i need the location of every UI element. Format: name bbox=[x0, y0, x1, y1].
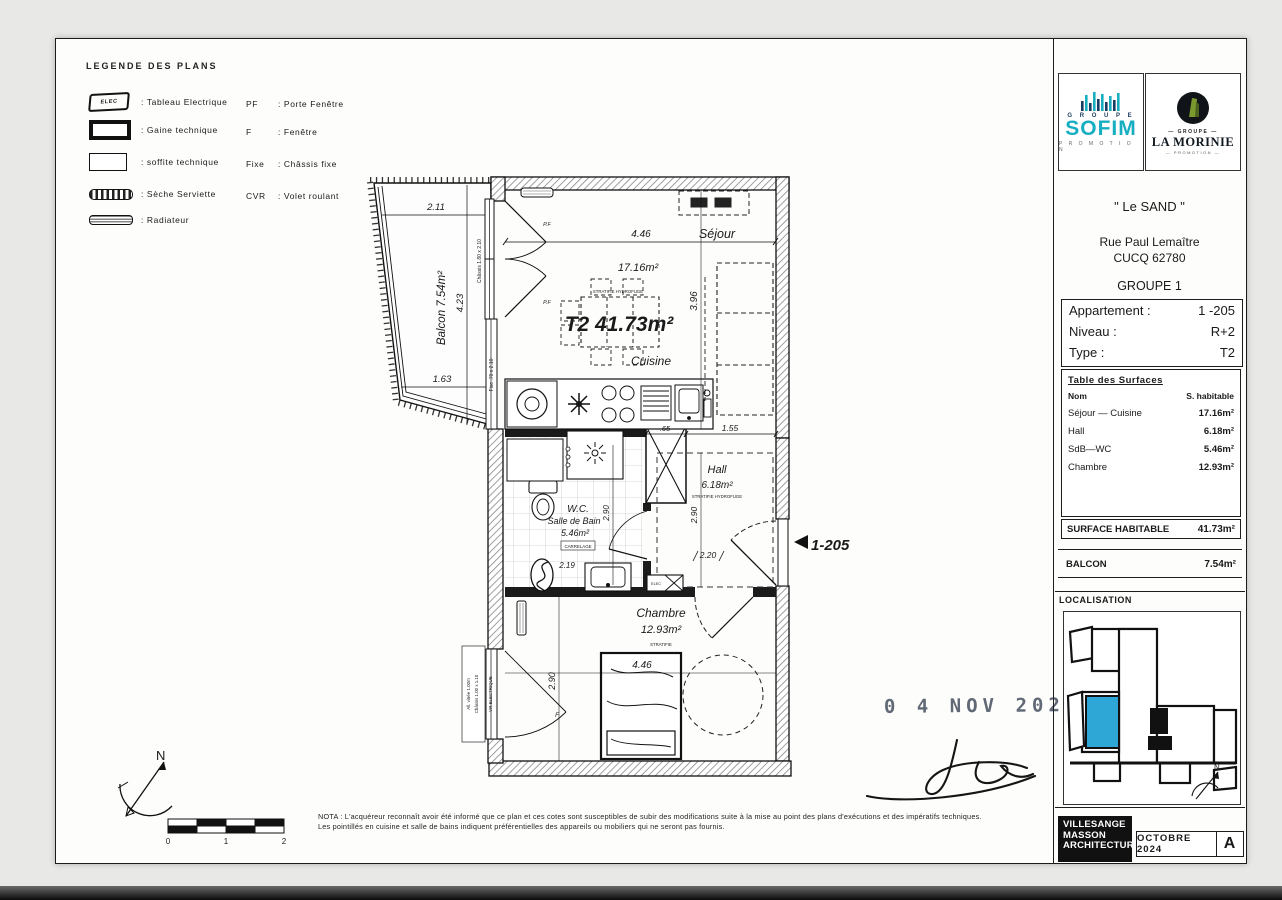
sejour-area: 17.16m² bbox=[618, 262, 659, 274]
wc-label: W.C. bbox=[567, 504, 589, 515]
surface-row-sejour: Séjour — Cuisine 17.16m² bbox=[1068, 408, 1234, 419]
legend-label: : Radiateur bbox=[141, 215, 189, 225]
surfaces-title: Table des Surfaces bbox=[1068, 375, 1234, 386]
scale-0: 0 bbox=[166, 837, 171, 846]
fixe-note: Fixe .70 x 2.10 bbox=[489, 358, 495, 391]
radiator-sejour bbox=[521, 188, 553, 197]
project-title: " Le SAND " bbox=[1055, 199, 1244, 214]
chambre: Chambre 12.93m² STRATIFIE 4.46 2.90 bbox=[505, 597, 776, 761]
dim-sdb-w: 2.19 bbox=[558, 561, 575, 570]
legend-abbrev-f: F : Fenêtre bbox=[246, 122, 317, 142]
morinie-building-icon bbox=[1175, 90, 1211, 126]
surface-habitable-box: SURFACE HABITABLE 41.73m² bbox=[1061, 519, 1241, 539]
hall-label: Hall bbox=[708, 464, 728, 476]
legend-title: LEGENDE DES PLANS bbox=[86, 61, 218, 71]
scan-edge bbox=[0, 886, 1282, 900]
sdb-area: 5.46m² bbox=[561, 528, 590, 538]
nota-line2: Les pointillés en cuisine et salle de ba… bbox=[318, 822, 1018, 832]
toilet-icon bbox=[529, 481, 557, 520]
hall-area: 6.18m² bbox=[701, 480, 733, 491]
vanity-icon bbox=[585, 563, 631, 591]
dim-chambre-w: 4.46 bbox=[632, 660, 652, 671]
dim-hall-h: 2.90 bbox=[689, 506, 699, 524]
surface-row-chambre: Chambre 12.93m² bbox=[1068, 462, 1234, 473]
level-row: Niveau : R+2 bbox=[1062, 321, 1242, 342]
address-line1: Rue Paul Lemaître bbox=[1055, 235, 1244, 249]
address-line2: CUCQ 62780 bbox=[1055, 251, 1244, 265]
legend-item-seche: : Sèche Serviette bbox=[89, 184, 216, 204]
balcon-label: Balcon 7.54m² bbox=[436, 270, 448, 345]
entrance-marker: 1-205 bbox=[794, 535, 850, 554]
gaine-technique-icon bbox=[89, 120, 141, 140]
soffite-box bbox=[507, 439, 563, 481]
cooktop-icon bbox=[568, 393, 590, 415]
pf1-label: P.F bbox=[543, 222, 551, 228]
legend-item-radiateur: : Radiateur bbox=[89, 210, 189, 230]
group-label: GROUPE 1 bbox=[1055, 279, 1244, 293]
architect-stamp: VILLESANGE MASSON ARCHITECTURE bbox=[1058, 816, 1132, 862]
entrance-door-arc bbox=[731, 521, 776, 540]
chambre-rug bbox=[683, 655, 763, 735]
cuisine-label: Cuisine bbox=[631, 354, 671, 368]
surfaces-header: Nom S. habitable bbox=[1068, 391, 1234, 401]
surface-row-hall: Hall 6.18m² bbox=[1068, 426, 1234, 437]
dim-gaine: .65 bbox=[660, 424, 671, 433]
dim-balcon-bottom: 1.63 bbox=[433, 374, 452, 385]
seche-serviette-symbol bbox=[531, 559, 553, 592]
map-n-label: N bbox=[1214, 763, 1220, 772]
apartment-row: Appartement : 1 -205 bbox=[1062, 300, 1242, 321]
tableau-electrique-icon: ELEC bbox=[89, 93, 141, 111]
surface-row-sdb: SdB—WC 5.46m² bbox=[1068, 444, 1234, 455]
balcony: 2.11 4.23 1.63 Balcon 7.54m² bbox=[370, 180, 491, 428]
apartment-value: 1 -205 bbox=[1198, 300, 1235, 321]
hall-floor-note: STRATIFIE HYDROFUGE bbox=[692, 494, 742, 499]
compass-n-label: N bbox=[156, 748, 165, 763]
scale-bar: 0 1 2 bbox=[166, 817, 298, 847]
gaine-technique bbox=[646, 426, 686, 503]
chambre-floor-note: STRATIFIE bbox=[650, 642, 672, 647]
soffite-technique-icon bbox=[89, 153, 141, 171]
chassis-chambre-note: Châssis 1.00 x 1.10 bbox=[474, 674, 479, 713]
dim-sejour-w: 4.46 bbox=[631, 229, 651, 240]
kitchen bbox=[505, 379, 713, 429]
apartment-info-box: Appartement : 1 -205 Niveau : R+2 Type :… bbox=[1061, 299, 1243, 367]
radiator-chambre bbox=[517, 601, 526, 635]
allege-note: All. vitrée 1.00m bbox=[466, 678, 471, 710]
dim-balcon-side: 4.23 bbox=[455, 293, 466, 312]
tableau-electrique-plan: ELEC bbox=[647, 575, 683, 591]
nota-line1: NOTA : L'acquéreur reconnaît avoir été i… bbox=[318, 812, 1018, 822]
sejour-floor-note: STRATIFIE HYDROFUGE bbox=[593, 289, 643, 294]
localisation-map-box: N bbox=[1063, 611, 1241, 805]
plan-sheet: LEGENDE DES PLANS ELEC : Tableau Electri… bbox=[55, 38, 1247, 864]
date-stamp: 0 4 NOV 2024 bbox=[884, 694, 1081, 718]
morinie-sub-label: — PROMOTION — bbox=[1166, 150, 1220, 155]
level-value: R+2 bbox=[1211, 321, 1235, 342]
pf-doors bbox=[505, 201, 546, 317]
sofim-bars-icon bbox=[1079, 91, 1123, 113]
pf2-label: P.F bbox=[543, 300, 551, 306]
title-block-separator bbox=[1053, 39, 1054, 863]
entrance-label: 1-205 bbox=[811, 537, 850, 554]
surfaces-table: Table des Surfaces Nom S. habitable Séjo… bbox=[1061, 369, 1241, 517]
sejour-label: Séjour bbox=[699, 227, 736, 241]
divider bbox=[1058, 549, 1242, 550]
divider bbox=[1055, 591, 1245, 592]
dim-sejour-h: 3.96 bbox=[689, 291, 700, 311]
dim-sdb-h: 2.90 bbox=[602, 505, 611, 522]
highlighted-unit bbox=[1086, 696, 1119, 748]
radiateur-icon bbox=[89, 215, 141, 225]
seche-serviette-icon bbox=[89, 189, 141, 200]
legend-label: : Tableau Electrique bbox=[141, 97, 228, 107]
chassis-sejour-note: Châssis 1.80 x 2.10 bbox=[477, 239, 483, 283]
morinie-brand-label: LA MORINIE bbox=[1152, 135, 1234, 150]
svg-text:ELEC: ELEC bbox=[651, 582, 661, 586]
legend-item-gaine: : Gaine technique bbox=[89, 120, 218, 140]
unit-big-label: T2 41.73m² bbox=[565, 313, 675, 336]
issue-date-box: OCTOBRE 2024 bbox=[1136, 831, 1218, 857]
legend-abbrev-pf: PF : Porte Fenêtre bbox=[246, 94, 344, 114]
scale-1: 1 bbox=[224, 837, 229, 846]
legend-label: : Sèche Serviette bbox=[141, 189, 216, 199]
legend-abbrev-fixe: Fixe : Châssis fixe bbox=[246, 154, 337, 174]
type-row: Type : T2 bbox=[1062, 342, 1242, 363]
revision-box: A bbox=[1216, 831, 1244, 857]
sofa bbox=[705, 263, 773, 415]
type-value: T2 bbox=[1220, 342, 1235, 363]
chambre-area: 12.93m² bbox=[641, 624, 682, 636]
dim-hall-w: 1.55 bbox=[722, 423, 739, 433]
localisation-title: LOCALISATION bbox=[1059, 595, 1132, 605]
legend-item-tableau: ELEC : Tableau Electrique bbox=[89, 92, 228, 112]
signature bbox=[861, 734, 1041, 804]
f-label: F bbox=[555, 713, 559, 719]
sdb-label: Salle de Bain bbox=[547, 516, 600, 526]
vr-electrique-note: VR ELECTRIQUE bbox=[488, 676, 493, 711]
scale-2: 2 bbox=[282, 837, 287, 846]
dim-hall-entry: 2.20 bbox=[699, 550, 717, 560]
sdb-floor-note: CARRELAGE bbox=[564, 544, 591, 549]
sofim-brand-label: SOFIM bbox=[1065, 119, 1137, 139]
morinie-logo: — GROUPE — LA MORINIE — PROMOTION — bbox=[1145, 73, 1241, 171]
dim-chambre-h: 2.90 bbox=[547, 672, 557, 691]
divider bbox=[1055, 807, 1245, 808]
legend-abbrev-cvr: CVR : Volet roulant bbox=[246, 186, 339, 206]
tv-console bbox=[679, 191, 749, 215]
floor-plan: 2.11 4.23 1.63 Balcon 7.54m² bbox=[356, 164, 856, 829]
sofim-sub-label: P R O M O T I O N bbox=[1059, 141, 1143, 153]
dim-balcon-top: 2.11 bbox=[426, 202, 445, 213]
legend-label: : soffite technique bbox=[141, 157, 219, 167]
surface-habitable-value: 41.73m² bbox=[1198, 524, 1235, 535]
chambre-label: Chambre bbox=[636, 606, 686, 620]
shower bbox=[566, 431, 623, 479]
legend-item-soffite: : soffite technique bbox=[89, 152, 219, 172]
localisation-map: N bbox=[1064, 612, 1238, 802]
chambre-door-arc bbox=[695, 597, 712, 638]
bathroom: CARRELAGE W.C. Salle de Bain 5.46m² 2.19… bbox=[505, 431, 647, 592]
balcon-row: BALCON 7.54m² bbox=[1061, 555, 1241, 573]
legend-label: : Gaine technique bbox=[141, 125, 218, 135]
nota-block: NOTA : L'acquéreur reconnaît avoir été i… bbox=[318, 812, 1018, 831]
sofim-logo: G R O U P E SOFIM P R O M O T I O N bbox=[1058, 73, 1144, 171]
balcon-value: 7.54m² bbox=[1204, 559, 1236, 570]
divider bbox=[1058, 577, 1242, 578]
